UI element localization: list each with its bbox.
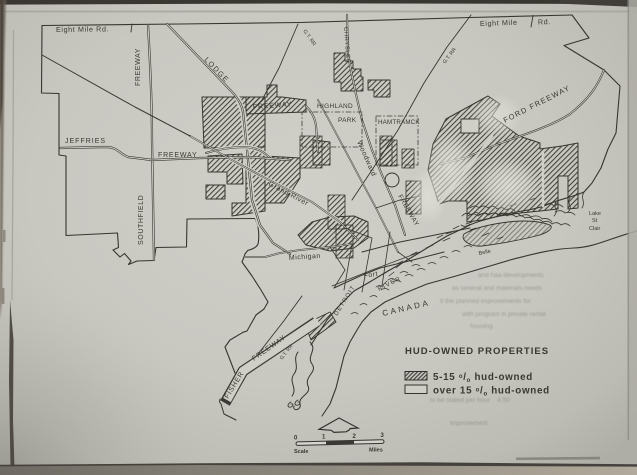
svg-text:Eight Mile Rd.: Eight Mile Rd. [56,24,109,34]
svg-text:Clair: Clair [589,226,600,232]
svg-text:to be stated per hour 4 50: to be stated per hour 4 50 [430,397,510,404]
svg-text:with program in private rental: with program in private rental [461,311,546,318]
svg-text:improvement: improvement [450,420,488,427]
svg-text:SOUTHFIELD: SOUTHFIELD [138,195,145,245]
svg-text:PARK: PARK [338,117,357,124]
svg-text:Miles: Miles [369,448,383,454]
svg-text:Scale: Scale [294,449,308,455]
svg-text:FREEWAY: FREEWAY [158,152,197,159]
svg-text:as several and materials needs: as several and materials needs [452,285,543,292]
svg-text:FREEWAY: FREEWAY [135,48,142,86]
svg-text:Eight Mile: Eight Mile [480,18,518,28]
svg-text:HAMTRAMCK: HAMTRAMCK [378,119,420,126]
svg-text:and haa developments: and haa developments [478,272,545,279]
svg-text:HIGHLAND: HIGHLAND [317,103,353,110]
svg-text:Rd.: Rd. [538,17,551,26]
svg-text:HUD-OWNED PROPERTIES: HUD-OWNED PROPERTIES [405,346,549,357]
svg-text:5-15 o/o hud-owned: 5-15 o/o hud-owned [433,372,533,384]
svg-text:housing: housing [470,323,493,330]
svg-text:it the planned improvements fo: it the planned improvements for [440,298,532,305]
svg-text:Lake: Lake [589,211,601,217]
svg-text:JEFFRIES: JEFFRIES [65,138,106,145]
svg-text:St: St [592,218,598,224]
svg-text:over 15 o/o hud-owned: over 15 o/o hud-owned [433,386,550,398]
